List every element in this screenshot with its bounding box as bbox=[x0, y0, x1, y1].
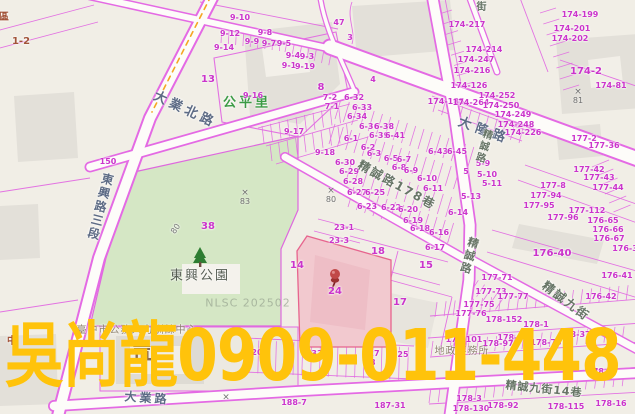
parcel-label: 174-201 bbox=[554, 25, 591, 33]
parcel-label: 4 bbox=[370, 76, 376, 84]
parcel-label: 177-36 bbox=[588, 142, 619, 150]
parcel-label: 177-43 bbox=[583, 174, 614, 182]
parcel-label: 9-12 bbox=[220, 30, 240, 38]
parcel-label: 174-216 bbox=[454, 67, 491, 75]
parcel-label: 6-32 bbox=[344, 94, 364, 102]
parcel-label: 9-5 bbox=[277, 40, 291, 48]
parcel-label: 9-18 bbox=[315, 149, 335, 157]
parcel-label: 1-2 bbox=[12, 37, 30, 47]
parcel-label: 176-65 bbox=[587, 217, 618, 225]
parcel-label: 6-1 bbox=[344, 135, 358, 143]
parcel-label: 5-10 bbox=[477, 171, 497, 179]
parcel-label: 9-3 bbox=[300, 53, 314, 61]
parcel-label: 174-81 bbox=[595, 82, 626, 90]
parcel-label: 5 bbox=[463, 168, 469, 176]
parcel-label: 174-199 bbox=[562, 11, 599, 19]
parcel-label: 177-94 bbox=[530, 192, 561, 200]
parcel-label: 174-126 bbox=[451, 82, 488, 90]
parcel-label: 9-19 bbox=[295, 63, 315, 71]
parcel-label: 177-8 bbox=[540, 182, 566, 190]
parcel-label: 174-214 bbox=[466, 46, 503, 54]
survey-marker: ×83 bbox=[240, 189, 250, 207]
parcel-label: 177-96 bbox=[547, 214, 578, 222]
parcel-label: 6-45 bbox=[447, 148, 467, 156]
parcel-label: 9-16 bbox=[243, 92, 263, 100]
parcel-label: 178-92 bbox=[487, 402, 518, 410]
parcel-label: 6-33 bbox=[352, 104, 372, 112]
parcel-label: 174-247 bbox=[458, 56, 495, 64]
parcel-label: 176-66 bbox=[592, 226, 623, 234]
parcel-label: 176-41 bbox=[601, 272, 632, 280]
parcel-label: 6-34 bbox=[347, 113, 367, 121]
parcel-label: 6-38 bbox=[374, 123, 394, 131]
parcel-label: 6-10 bbox=[417, 175, 437, 183]
parcel-label: 174-202 bbox=[552, 35, 589, 43]
parcel-label: 區 bbox=[0, 13, 9, 23]
parcel-label: 5-11 bbox=[482, 180, 502, 188]
parcel-label: 176-3 bbox=[612, 245, 635, 253]
parcel-label: 47 bbox=[333, 19, 344, 27]
parcel-label: 9-4 bbox=[286, 52, 300, 60]
parcel-label: 176-40 bbox=[533, 249, 572, 259]
parcel-label: 3 bbox=[347, 34, 353, 42]
parcel-label: 6-20 bbox=[398, 206, 418, 214]
parcel-label: 14 bbox=[290, 261, 304, 271]
ad-overlay-text: 吳尚龍0909-011-448 bbox=[5, 320, 621, 391]
parcel-label: 6-28 bbox=[343, 178, 363, 186]
road-label-street-partial: 街 bbox=[474, 1, 484, 13]
parcel-label: 7-1 bbox=[325, 103, 339, 111]
parcel-label: 9-17 bbox=[284, 128, 304, 136]
parcel-label: 9-8 bbox=[258, 29, 272, 37]
map-canvas[interactable]: 東興路三段 大業北路 大隆路 精誠路 精誠路 精誠路178巷 精誠九街 精誠九街… bbox=[0, 0, 635, 414]
parcel-label: 6-16 bbox=[429, 229, 449, 237]
parcel-label: 6-3 bbox=[367, 150, 381, 158]
parcel-label: 178-115 bbox=[548, 403, 585, 411]
parcel-label: 6-30 bbox=[335, 159, 355, 167]
parcel-label: 6-41 bbox=[385, 132, 405, 140]
parcel-label: 187-31 bbox=[374, 402, 405, 410]
parcel-label: 6-43 bbox=[428, 148, 448, 156]
parcel-label: 23-1 bbox=[334, 224, 354, 232]
parcel-label: 17 bbox=[393, 298, 407, 308]
parcel-label: 6-23 bbox=[357, 203, 377, 211]
parcel-label: 176-67 bbox=[593, 235, 624, 243]
parcel-label: 177-71 bbox=[481, 274, 512, 282]
parcel-label: 174-249 bbox=[495, 111, 532, 119]
parcel-label: 178-130 bbox=[453, 405, 490, 413]
parcel-label: 6-14 bbox=[448, 209, 468, 217]
parcel-label: 174-217 bbox=[449, 21, 486, 29]
parcel-label: 18 bbox=[371, 247, 385, 257]
parcel-label: 177-95 bbox=[523, 202, 554, 210]
parcel-label: 177-44 bbox=[592, 184, 623, 192]
parcel-label: 9-10 bbox=[230, 14, 250, 22]
parcel-label: 176-42 bbox=[585, 293, 616, 301]
parcel-label: 9-14 bbox=[214, 44, 234, 52]
parcel-label: 23-3 bbox=[329, 237, 349, 245]
parcel-label: 6-18 bbox=[410, 225, 430, 233]
parcel-label: 174-250 bbox=[483, 102, 520, 110]
parcel-label: 6-11 bbox=[423, 185, 443, 193]
parcel-label: 174-252 bbox=[479, 92, 516, 100]
parcel-label: 177-75 bbox=[463, 301, 494, 309]
parcel-label: 80 bbox=[170, 223, 182, 236]
survey-marker: ×81 bbox=[573, 88, 583, 106]
parcel-label: 174-2 bbox=[570, 67, 602, 77]
survey-marker: ×80 bbox=[326, 187, 336, 205]
parcel-label: 38 bbox=[201, 222, 215, 232]
parcel-label: 6-17 bbox=[425, 244, 445, 252]
parcel-label: 9-9 bbox=[245, 38, 259, 46]
parcel-label: 7-2 bbox=[323, 94, 337, 102]
parcel-label: 24 bbox=[328, 287, 342, 297]
parcel-label: 15 bbox=[419, 261, 433, 271]
parcel-label: 5-13 bbox=[461, 193, 481, 201]
parcel-label: 13 bbox=[201, 75, 215, 85]
parcel-label: 9-7 bbox=[262, 40, 276, 48]
parcel-label: 188-7 bbox=[281, 399, 307, 407]
parcel-label: 8 bbox=[318, 83, 325, 93]
parcel-label: 6-25 bbox=[365, 189, 385, 197]
parcel-label: 150 bbox=[100, 158, 117, 166]
parcel-label: 178-16 bbox=[595, 400, 626, 408]
parcel-label: 177-77 bbox=[497, 293, 528, 301]
